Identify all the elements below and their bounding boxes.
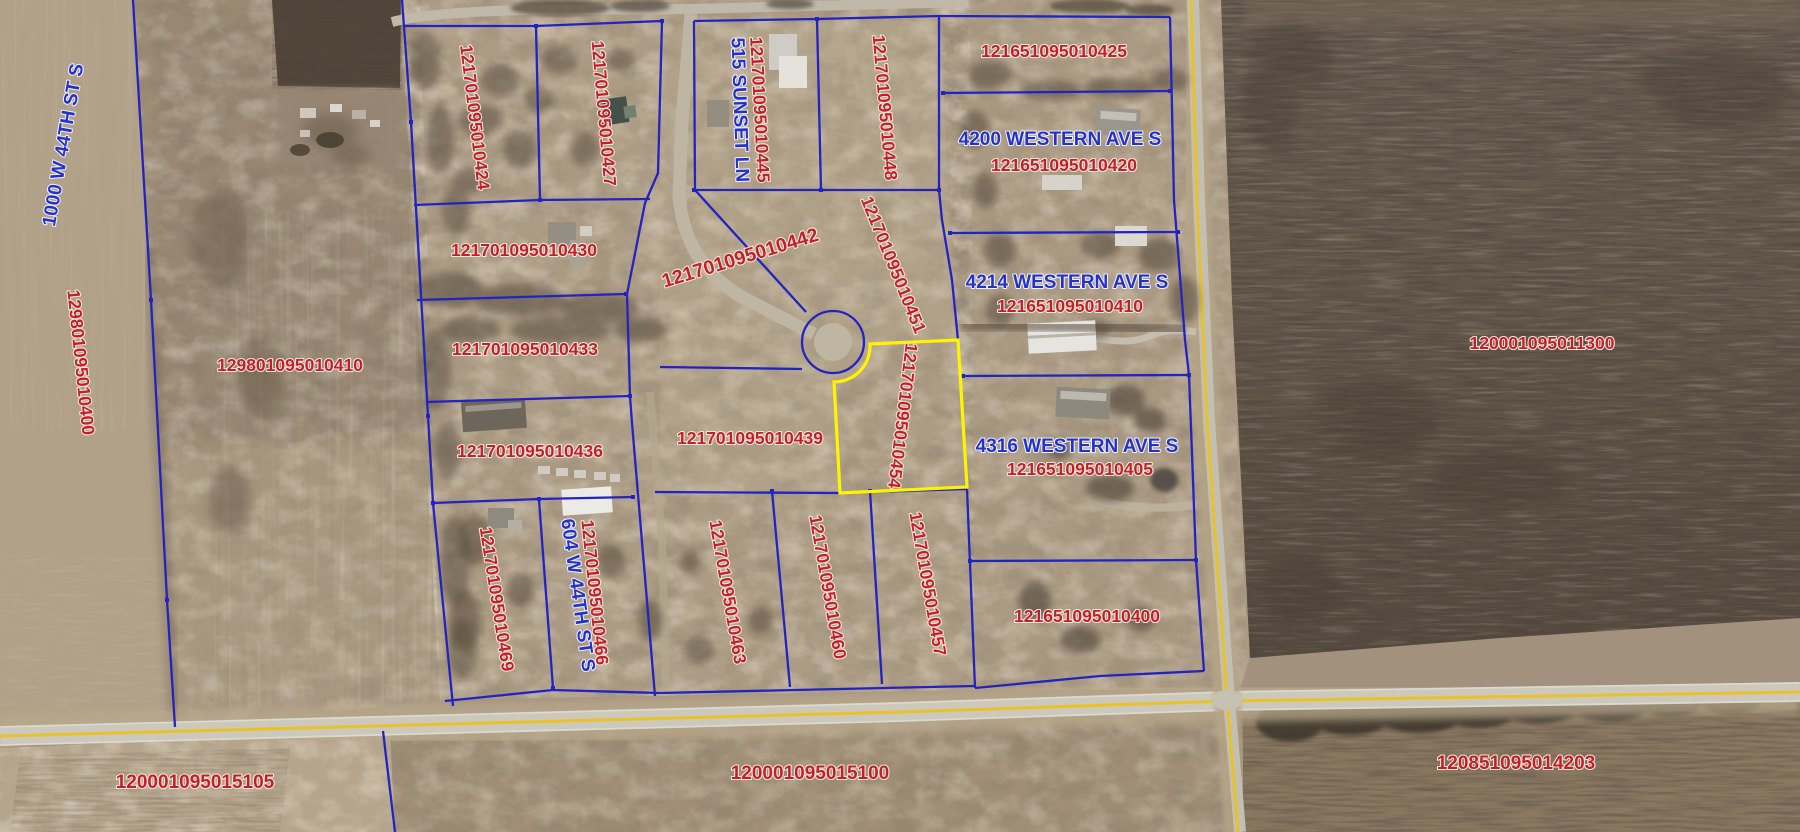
svg-text:121701095010433: 121701095010433	[452, 339, 598, 359]
svg-text:120851095014203: 120851095014203	[1437, 753, 1596, 774]
svg-text:121701095010430: 121701095010430	[451, 240, 597, 260]
svg-text:120001095015105: 120001095015105	[116, 772, 275, 793]
svg-text:121701095010436: 121701095010436	[457, 441, 603, 461]
svg-text:4214 WESTERN AVE S: 4214 WESTERN AVE S	[966, 272, 1169, 293]
svg-text:121701095010439: 121701095010439	[677, 428, 823, 448]
svg-text:121651095010410: 121651095010410	[997, 296, 1143, 316]
svg-text:129801095010410: 129801095010410	[217, 355, 363, 375]
svg-text:121651095010400: 121651095010400	[1014, 606, 1160, 626]
svg-text:4200 WESTERN AVE S: 4200 WESTERN AVE S	[959, 129, 1162, 150]
svg-text:121651095010405: 121651095010405	[1007, 459, 1153, 479]
svg-text:120001095015100: 120001095015100	[731, 763, 890, 784]
svg-text:121651095010420: 121651095010420	[991, 155, 1137, 175]
svg-text:4316 WESTERN AVE S: 4316 WESTERN AVE S	[976, 436, 1179, 457]
svg-text:120001095011300: 120001095011300	[1469, 333, 1614, 353]
svg-text:121651095010425: 121651095010425	[981, 41, 1127, 61]
